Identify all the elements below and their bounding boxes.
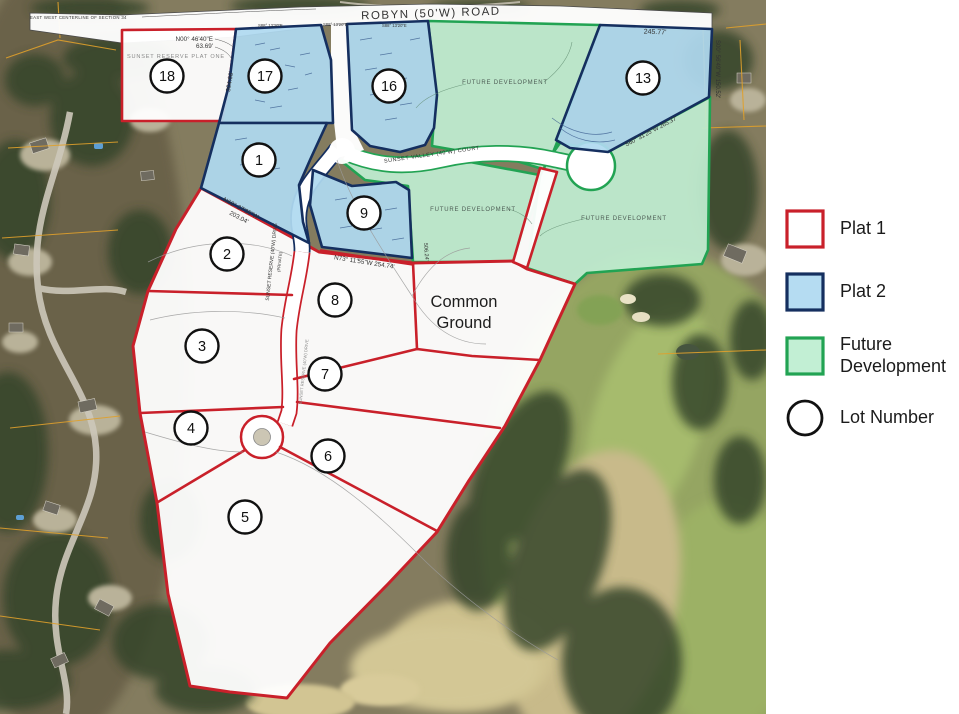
legend-item-plat1: Plat 1 (784, 208, 886, 250)
lot-marker-16: 16 (373, 70, 406, 103)
lot-marker-6: 6 (312, 440, 345, 473)
bearing-s88-2: S88° 13'20"E (323, 22, 348, 27)
svg-text:6: 6 (324, 449, 332, 465)
future-development-swatch-icon (784, 335, 826, 377)
svg-text:16: 16 (381, 79, 397, 95)
svg-text:7: 7 (321, 367, 329, 383)
legend-item-plat2: Plat 2 (784, 271, 886, 313)
svg-text:1: 1 (255, 153, 263, 169)
svg-text:2: 2 (223, 247, 231, 263)
svg-text:17: 17 (257, 69, 273, 85)
svg-text:9: 9 (360, 206, 368, 222)
sunset-valley-court (346, 153, 583, 166)
future-dev-label-left: FUTURE DEVELOPMENT (430, 207, 516, 213)
plat-map-screen: ROBYN (50'W) ROAD EAST WEST CENTERLINE O… (0, 0, 959, 714)
lot-marker-5: 5 (229, 501, 262, 534)
plat2-swatch-icon (784, 271, 826, 313)
lot-marker-9: 9 (348, 197, 381, 230)
bearing-n00-length: 63.69' (196, 43, 213, 50)
lot-marker-4: 4 (175, 412, 208, 445)
centerline-label: EAST WEST CENTERLINE OF SECTION 34 (30, 15, 127, 20)
legend-label-plat1: Plat 1 (840, 218, 886, 240)
bearing-lot13-east: S00° 56'49"W 150.52' (714, 40, 720, 98)
svg-text:4: 4 (187, 421, 195, 437)
legend-label-lot-number: Lot Number (840, 407, 934, 429)
lot-marker-18: 18 (151, 60, 184, 93)
lot-marker-8: 8 (319, 284, 352, 317)
lot-marker-1: 1 (243, 144, 276, 177)
legend-item-future-development: Future Development (784, 334, 959, 377)
bearing-s88-1: S88° 13'20"E (258, 23, 283, 28)
lot-marker-3: 3 (186, 330, 219, 363)
common-ground-label-line1: Common (431, 293, 498, 311)
lot-marker-7: 7 (309, 358, 342, 391)
lot-number-circle-icon (784, 397, 826, 439)
plat1-swatch-icon (784, 208, 826, 250)
svg-text:13: 13 (635, 71, 651, 87)
future-dev-label-right: FUTURE DEVELOPMENT (581, 216, 667, 222)
legend-item-lot-number: Lot Number (784, 397, 934, 439)
legend-label-future-development: Future Development (840, 334, 959, 377)
future-dev-label-top: FUTURE DEVELOPMENT (462, 80, 548, 86)
svg-text:8: 8 (331, 293, 339, 309)
bearing-s88-3: S88° 13'20"E (382, 23, 407, 28)
lot-marker-2: 2 (211, 238, 244, 271)
drive-cul-de-sac (241, 416, 283, 458)
svg-text:5: 5 (241, 510, 249, 526)
svg-text:3: 3 (198, 339, 206, 355)
dim-lot13-top: 245.77' (644, 29, 667, 37)
road-junction (329, 138, 355, 164)
bearing-n00: N00° 46'40"E (176, 35, 213, 43)
dim-common-ground-east: 506.24' (422, 243, 429, 261)
legend-label-plat2: Plat 2 (840, 281, 886, 303)
plat-one-label: SUNSET RESERVE PLAT ONE (127, 54, 225, 60)
svg-text:18: 18 (159, 69, 175, 85)
plat-map-image: ROBYN (50'W) ROAD EAST WEST CENTERLINE O… (0, 0, 766, 714)
lot-marker-17: 17 (249, 60, 282, 93)
common-ground-label-line2: Ground (436, 314, 491, 332)
lot-marker-13: 13 (627, 62, 660, 95)
